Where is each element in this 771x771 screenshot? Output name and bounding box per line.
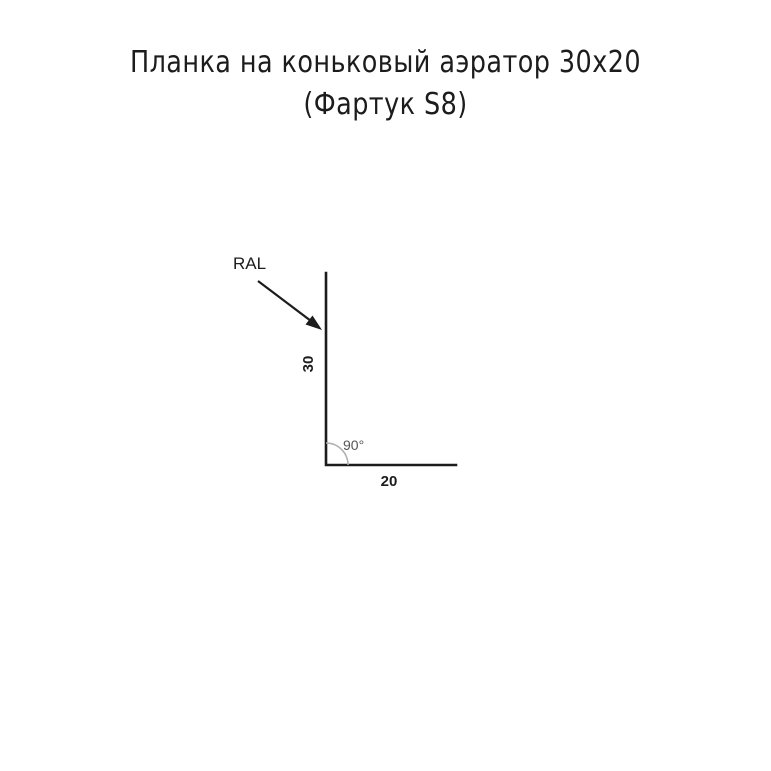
ral-label: RAL — [233, 254, 266, 273]
height-dimension-label: 30 — [300, 356, 317, 373]
drawing-page: Планка на коньковый аэратор 30x20 (Фарту… — [0, 0, 771, 771]
profile-diagram: RAL 30 90° 20 — [0, 0, 771, 771]
ral-leader-line — [258, 281, 311, 321]
width-dimension-label: 20 — [381, 473, 398, 490]
angle-label: 90° — [343, 437, 364, 453]
